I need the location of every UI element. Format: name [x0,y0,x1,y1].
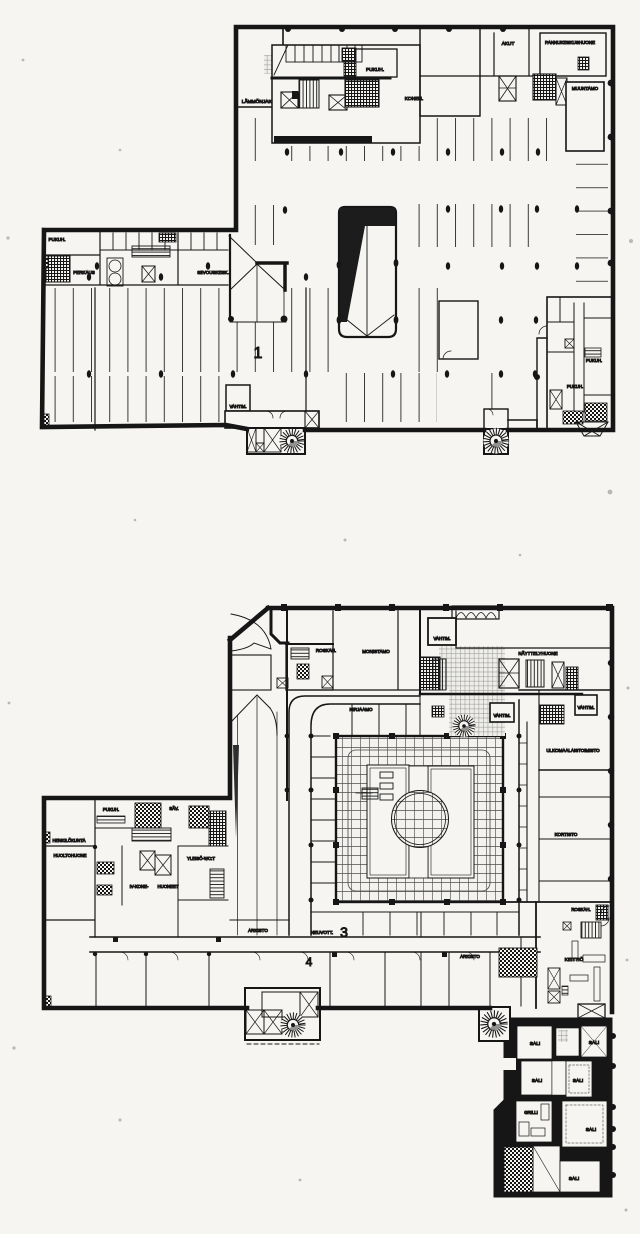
svg-text:HENKILÖKUNTA: HENKILÖKUNTA [52,838,85,843]
svg-text:PANNUKESKUSHUONE: PANNUKESKUSHUONE [545,40,595,45]
svg-text:NEUVOTT.: NEUVOTT. [311,930,333,935]
svg-text:HUOLTOHUONE: HUOLTOHUONE [53,853,86,858]
svg-text:KIRJAAMO: KIRJAAMO [349,707,373,712]
svg-text:SALI: SALI [569,1176,579,1182]
svg-text:VAHTIM.: VAHTIM. [229,404,246,409]
svg-text:SALI: SALI [589,1040,599,1046]
svg-text:3: 3 [340,924,348,940]
svg-text:PUKUH.: PUKUH. [366,67,384,73]
svg-text:SALI: SALI [573,1078,583,1084]
svg-text:GRILLI: GRILLI [524,1110,538,1115]
svg-text:VAHTIM.: VAHTIM. [577,705,594,710]
svg-text:MONISTAMO: MONISTAMO [362,649,390,654]
svg-text:VAHTIM.: VAHTIM. [493,713,510,718]
svg-text:PUKUH.: PUKUH. [567,384,583,389]
svg-text:KORTISTO: KORTISTO [555,832,578,837]
svg-text:SALI: SALI [586,1127,596,1133]
svg-text:IV-KONE-: IV-KONE- [130,884,149,889]
svg-text:YLEISÖ-WC:T: YLEISÖ-WC:T [187,856,215,861]
svg-text:ARKISTO: ARKISTO [248,928,268,933]
svg-text:PUKUH.: PUKUH. [586,358,602,363]
svg-text:PUKUH.: PUKUH. [103,807,119,812]
svg-text:ARKISTO: ARKISTO [460,954,480,959]
svg-text:PUKUH.: PUKUH. [48,237,65,242]
svg-text:NÄYTTELYHUONE: NÄYTTELYHUONE [518,650,557,656]
svg-text:KEITTIÖ: KEITTIÖ [565,956,584,963]
svg-text:SALI: SALI [532,1078,542,1084]
svg-text:SALI: SALI [530,1041,540,1047]
svg-text:HUONEET: HUONEET [157,884,178,889]
svg-text:SÄV.: SÄV. [169,806,178,811]
svg-text:1: 1 [254,345,263,362]
svg-text:4: 4 [306,955,313,969]
svg-text:AKUT: AKUT [502,41,515,47]
svg-text:PERKAUS: PERKAUS [73,270,95,275]
svg-text:ROSKAH.: ROSKAH. [571,907,590,912]
svg-text:VAHTIM.: VAHTIM. [433,636,450,641]
svg-text:MUUNTAMO: MUUNTAMO [572,86,599,91]
svg-text:SIIVOUSKESK.: SIIVOUSKESK. [197,270,229,275]
svg-text:ULKOMAALAISTOIMISTO: ULKOMAALAISTOIMISTO [546,748,600,753]
